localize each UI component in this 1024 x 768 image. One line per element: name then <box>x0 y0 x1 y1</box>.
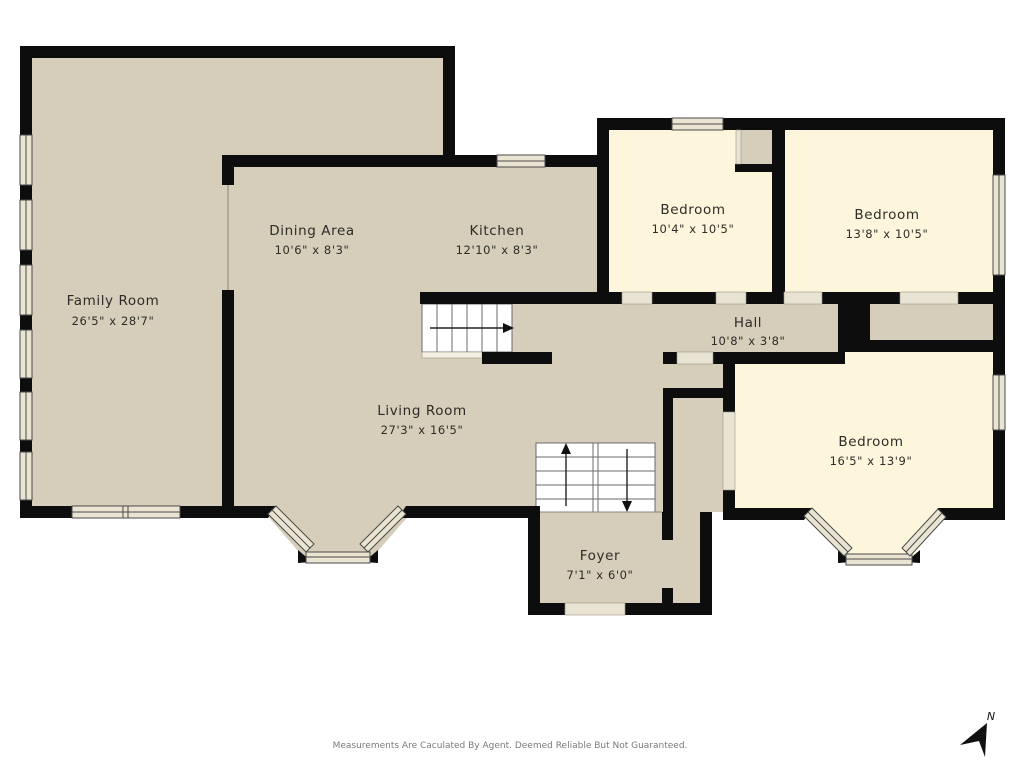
floorplan: Family Room 26'5" x 28'7" Dining Area 10… <box>0 0 1024 768</box>
room-dims: 10'8" x 3'8" <box>711 334 786 348</box>
wall <box>723 352 845 364</box>
staircase-foyer <box>536 443 655 512</box>
door-opening <box>723 412 735 490</box>
door-opening <box>900 292 958 304</box>
wall <box>663 388 733 398</box>
room-name: Kitchen <box>470 223 525 239</box>
room-dims: 12'10" x 8'3" <box>456 243 539 257</box>
stair-edge-strip <box>422 352 482 358</box>
closet-door-opening <box>736 130 741 164</box>
wall <box>20 46 455 58</box>
room-name: Bedroom <box>854 207 919 223</box>
stair-body <box>536 443 655 512</box>
wall <box>222 155 605 167</box>
staircase-upper <box>422 304 514 358</box>
room-name: Foyer <box>580 548 620 564</box>
room-name: Hall <box>734 315 762 331</box>
room-dims: 10'6" x 8'3" <box>275 243 350 257</box>
wall <box>482 352 552 364</box>
front-door-opening <box>565 603 625 615</box>
wall <box>772 130 785 292</box>
room-dims: 10'4" x 10'5" <box>652 222 735 236</box>
room-floor-family <box>20 155 234 518</box>
room-floor-family-top <box>20 46 455 167</box>
wall <box>443 46 455 167</box>
wall <box>597 118 609 304</box>
room-dims: 7'1" x 6'0" <box>567 568 634 582</box>
wall <box>222 155 234 185</box>
wall <box>845 340 993 352</box>
wall <box>662 512 673 540</box>
wall <box>597 118 1005 130</box>
room-dims: 26'5" x 28'7" <box>72 314 155 328</box>
wall <box>412 506 540 518</box>
room-name: Bedroom <box>838 434 903 450</box>
room-floor-hall-passage <box>868 304 993 340</box>
wall <box>723 352 735 412</box>
room-floor-bedroom1-closet <box>741 130 772 166</box>
room-dims: 16'5" x 13'9" <box>830 454 913 468</box>
room-name: Family Room <box>67 293 160 309</box>
door-opening <box>677 352 713 364</box>
disclaimer-text: Measurements Are Caculated By Agent. Dee… <box>333 741 688 751</box>
door-opening <box>784 292 822 304</box>
room-dims: 27'3" x 16'5" <box>381 423 464 437</box>
door-opening <box>716 292 746 304</box>
north-label: N <box>987 710 995 723</box>
wall <box>700 512 712 612</box>
wall <box>735 164 785 172</box>
wall <box>662 588 673 615</box>
wall <box>222 290 234 518</box>
wall <box>723 508 803 520</box>
wall <box>528 512 540 615</box>
room-floor-closet <box>663 352 733 512</box>
wall <box>663 398 673 512</box>
room-name: Dining Area <box>269 223 355 239</box>
room-name: Bedroom <box>660 202 725 218</box>
room-dims: 13'8" x 10'5" <box>846 227 929 241</box>
door-opening <box>622 292 652 304</box>
room-name: Living Room <box>377 403 466 419</box>
